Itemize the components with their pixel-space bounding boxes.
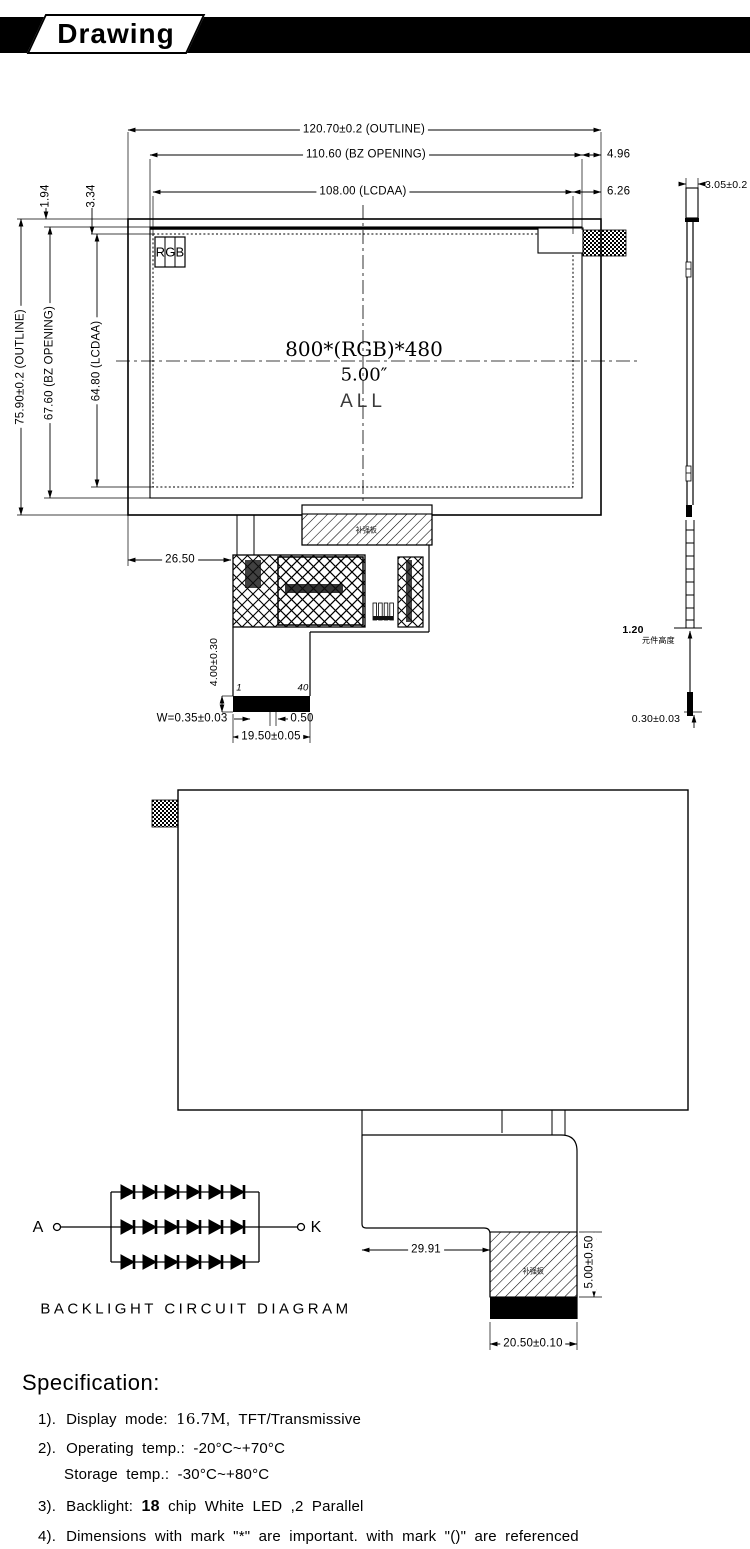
- top-right-contact-block: [583, 230, 626, 256]
- led-icon: [187, 1255, 200, 1269]
- spec-item-number: 2).: [38, 1440, 56, 1457]
- dim-thickness: 3.05±0.2: [705, 180, 747, 191]
- spec-item-dimension-marks: 4).Dimensions with mark "*" are importan…: [38, 1528, 579, 1545]
- fpc-area: [233, 505, 432, 712]
- led-icon: [121, 1220, 134, 1234]
- dim-pin-pitch: 0.50: [290, 713, 313, 725]
- led-icon: [209, 1185, 222, 1199]
- datasheet-drawing-page: Drawing: [0, 0, 750, 1549]
- dim-pin-width: W=0.35±0.03: [157, 713, 228, 725]
- side-fpc-ladder: [686, 520, 694, 628]
- spec-item-number: 1).: [38, 1411, 56, 1428]
- led-icon: [231, 1220, 244, 1234]
- spec-item-backlight: 3).Backlight: 18 chip White LED ,2 Paral…: [38, 1498, 364, 1516]
- pin-1-label: 1: [236, 683, 241, 693]
- led-icon: [209, 1220, 222, 1234]
- led-icon: [209, 1255, 222, 1269]
- spec-item-text: Dimensions with mark "*" are important. …: [66, 1528, 579, 1545]
- spec-item-text: Storage temp.: -30°C~+80°C: [64, 1466, 269, 1483]
- rear-outline: [178, 790, 688, 1110]
- backlight-circuit-diagram: [54, 1185, 305, 1269]
- spec-item-operating-temp: 2).Operating temp.: -20°C~+70°C: [38, 1440, 285, 1457]
- dim-top-offset-lcdaa: 3.34: [86, 184, 98, 207]
- backlight-caption: BACKLIGHT CIRCUIT DIAGRAM: [40, 1301, 351, 1318]
- side-profile-top: [686, 188, 698, 218]
- led-icon: [187, 1185, 200, 1199]
- dim-rear-stiffener-height: 5.00±0.50: [584, 1233, 596, 1292]
- top-dimensions: [128, 130, 601, 192]
- rear-fpc-left-edge: [362, 1135, 490, 1297]
- dim-outline-height: 75.90±0.2 (OUTLINE): [15, 306, 27, 428]
- left-dimensions: [21, 208, 97, 515]
- dim-connector-width: 19.50±0.05: [238, 731, 303, 743]
- spec-item-text: Operating temp.: -20°C~+70°C: [66, 1440, 285, 1457]
- dim-right-offset-bz: 4.96: [607, 149, 630, 161]
- dim-rear-connector-width: 20.50±0.10: [500, 1338, 565, 1350]
- front-stiffener-label: 补强板: [356, 526, 377, 534]
- rear-stiffener-label: 补强板: [523, 1267, 544, 1275]
- side-fpc-end: [687, 692, 693, 716]
- led-icon: [231, 1185, 244, 1199]
- cathode-label: K: [311, 1219, 322, 1237]
- led-icon: [165, 1220, 178, 1234]
- rear-stiffener: [490, 1232, 577, 1297]
- dim-fpc-thickness: 0.30±0.03: [632, 714, 680, 725]
- spec-item-bold: 18: [142, 1498, 160, 1515]
- spec-item-rest: chip White LED ,2 Parallel: [168, 1498, 363, 1515]
- side-view-drawing: [674, 178, 704, 728]
- dim-right-offset-lcdaa: 6.26: [607, 186, 630, 198]
- dim-bz-width: 110.60 (BZ OPENING): [303, 149, 429, 161]
- component-height-label: 元件高度: [642, 637, 675, 645]
- dim-fpc-offset: 26.50: [162, 554, 198, 566]
- anode-label: A: [33, 1219, 44, 1237]
- pin-40-label: 40: [298, 683, 309, 693]
- spec-item-text: Backlight:: [66, 1498, 133, 1515]
- all-label: ALL: [340, 391, 386, 413]
- led-icon: [121, 1255, 134, 1269]
- cathode-terminal: [298, 1224, 305, 1231]
- fpc-contact-fingers: [233, 696, 310, 712]
- led-icon: [143, 1185, 156, 1199]
- spec-item-number: 3).: [38, 1498, 56, 1515]
- spec-item-number: 4).: [38, 1528, 56, 1545]
- led-icon: [165, 1255, 178, 1269]
- rgb-label: RGB: [156, 246, 185, 259]
- dim-lcdaa-height: 64.80 (LCDAA): [91, 318, 103, 405]
- resolution-label: 800*(RGB)*480: [285, 337, 443, 361]
- dim-bz-height: 67.60 (BZ OPENING): [44, 303, 56, 423]
- led-icon: [143, 1255, 156, 1269]
- led-icon: [187, 1220, 200, 1234]
- top-right-pad: [538, 228, 583, 253]
- led-icon: [231, 1255, 244, 1269]
- dim-lcdaa-width: 108.00 (LCDAA): [316, 186, 409, 198]
- spec-item-rest: , TFT/Transmissive: [226, 1411, 361, 1428]
- dim-outline-width: 120.70±0.2 (OUTLINE): [300, 124, 428, 136]
- specification-title: Specification:: [22, 1370, 160, 1396]
- front-view-drawing: [17, 130, 640, 743]
- bezel-opening: [150, 227, 582, 498]
- rear-contact-fingers: [490, 1297, 577, 1319]
- anode-terminal: [54, 1224, 61, 1231]
- led-icon: [121, 1185, 134, 1199]
- spec-item-storage-temp: Storage temp.: -30°C~+80°C: [64, 1466, 269, 1483]
- dim-rear-fpc-offset: 29.91: [408, 1244, 444, 1256]
- dim-component-height: 1.20: [622, 625, 643, 636]
- dim-connector-height: 4.00±0.30: [209, 638, 220, 686]
- dim-top-offset-bz: 1.94: [40, 184, 52, 207]
- led-icon: [143, 1220, 156, 1234]
- spec-item-text: Display mode:: [66, 1411, 168, 1428]
- diagonal-size-label: 5.00″: [341, 365, 388, 386]
- led-icon: [165, 1185, 178, 1199]
- rear-contact-block: [152, 800, 178, 827]
- spec-item-serif: 16.7M: [176, 1410, 226, 1428]
- spec-item-display-mode: 1).Display mode: 16.7M, TFT/Transmissive: [38, 1410, 361, 1428]
